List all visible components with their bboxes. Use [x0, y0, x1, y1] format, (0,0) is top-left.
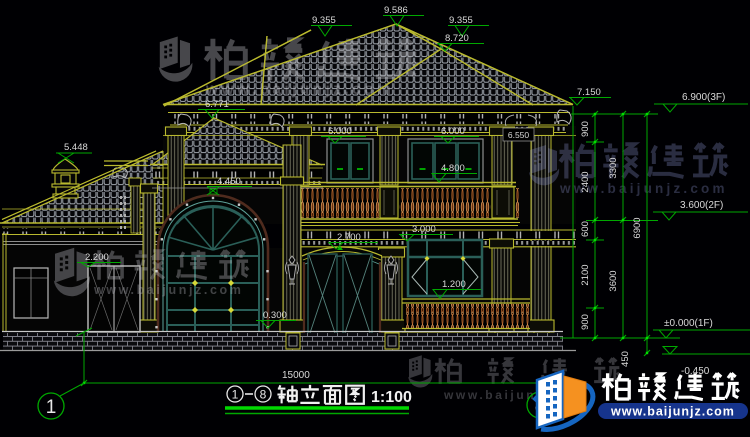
svg-text:www.baijunjz.com: www.baijunjz.com	[205, 81, 394, 98]
svg-text:600: 600	[580, 221, 591, 237]
svg-text:2.700: 2.700	[337, 232, 361, 243]
svg-text:7.150: 7.150	[577, 87, 601, 98]
svg-text:6.550: 6.550	[508, 130, 530, 140]
svg-text:2100: 2100	[580, 264, 591, 285]
svg-text:9.355: 9.355	[449, 15, 473, 26]
svg-text:900: 900	[580, 121, 591, 137]
svg-text:0.300: 0.300	[263, 310, 287, 321]
svg-text:www.baijunjz.com: www.baijunjz.com	[610, 405, 735, 419]
svg-text:6.000: 6.000	[441, 126, 465, 137]
svg-text:6.771: 6.771	[205, 99, 229, 110]
svg-text:4.450: 4.450	[217, 176, 241, 187]
svg-text:2.200: 2.200	[85, 252, 109, 263]
svg-text:5.448: 5.448	[64, 142, 88, 153]
svg-text:1.200: 1.200	[442, 279, 466, 290]
svg-text:1:100: 1:100	[371, 389, 412, 406]
svg-text:900: 900	[580, 314, 591, 330]
svg-text:1: 1	[46, 397, 57, 418]
svg-text:6.000: 6.000	[328, 126, 352, 137]
svg-text:6900: 6900	[632, 217, 643, 238]
svg-text:9.586: 9.586	[384, 5, 408, 16]
svg-text:8: 8	[260, 388, 267, 402]
svg-text:3600: 3600	[608, 270, 619, 291]
svg-text:www.baijunjz.com: www.baijunjz.com	[93, 283, 243, 297]
svg-text:4.800: 4.800	[441, 163, 465, 174]
svg-text:2400: 2400	[580, 171, 591, 192]
svg-text:9.355: 9.355	[312, 15, 336, 26]
svg-text:3300: 3300	[608, 157, 619, 178]
svg-text:1: 1	[232, 388, 239, 402]
svg-text:±0.000(1F): ±0.000(1F)	[664, 318, 713, 329]
svg-text:3.600(2F): 3.600(2F)	[680, 200, 723, 211]
svg-text:450: 450	[620, 351, 631, 367]
svg-text:3.000: 3.000	[412, 224, 436, 235]
svg-text:15000: 15000	[282, 370, 310, 381]
svg-text:6.900(3F): 6.900(3F)	[682, 92, 725, 103]
svg-text:8.720: 8.720	[445, 33, 469, 44]
